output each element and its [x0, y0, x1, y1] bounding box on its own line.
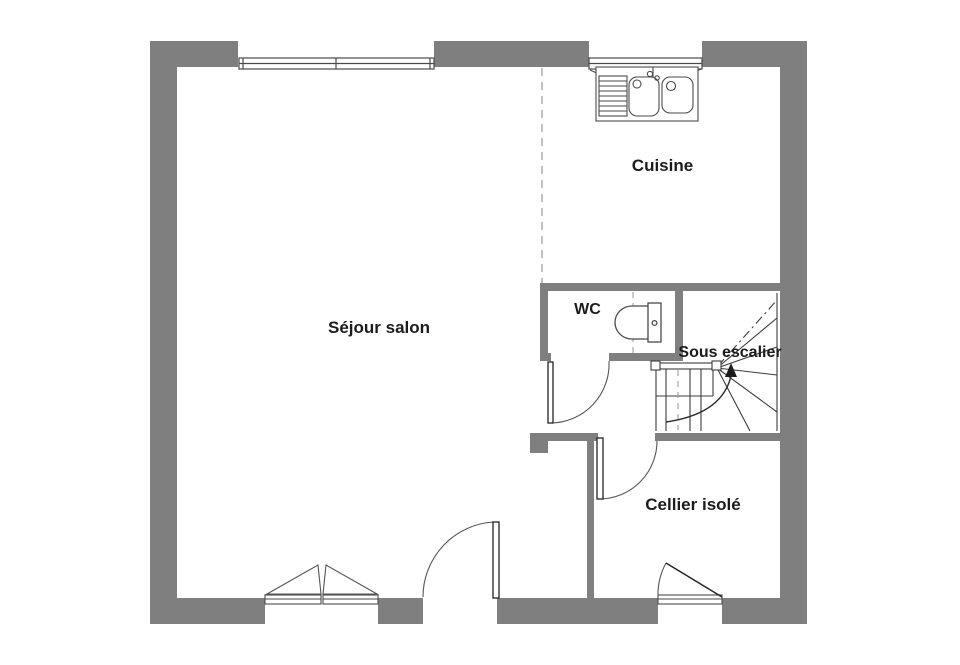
plan-symbols [0, 0, 960, 665]
winder-staircase-icon [651, 293, 777, 431]
toilet-icon [615, 292, 661, 353]
entrance-door [658, 563, 722, 604]
room-label-cuisine: Cuisine [600, 156, 725, 176]
kitchen-sink-icon [590, 67, 701, 121]
room-label-cellier: Cellier isolé [630, 495, 756, 515]
room-label-sejour: Séjour salon [300, 318, 458, 338]
wc-door [548, 361, 609, 423]
cellier-door [597, 438, 657, 499]
room-label-sous-escalier: Sous escalier [672, 344, 788, 362]
room-label-wc: WC [560, 301, 615, 319]
floor-plan: Séjour salon Cuisine WC Sous escalier Ce… [0, 0, 960, 665]
french-window [265, 565, 378, 604]
double-casement-window [239, 58, 434, 69]
sejour-door [423, 522, 499, 598]
